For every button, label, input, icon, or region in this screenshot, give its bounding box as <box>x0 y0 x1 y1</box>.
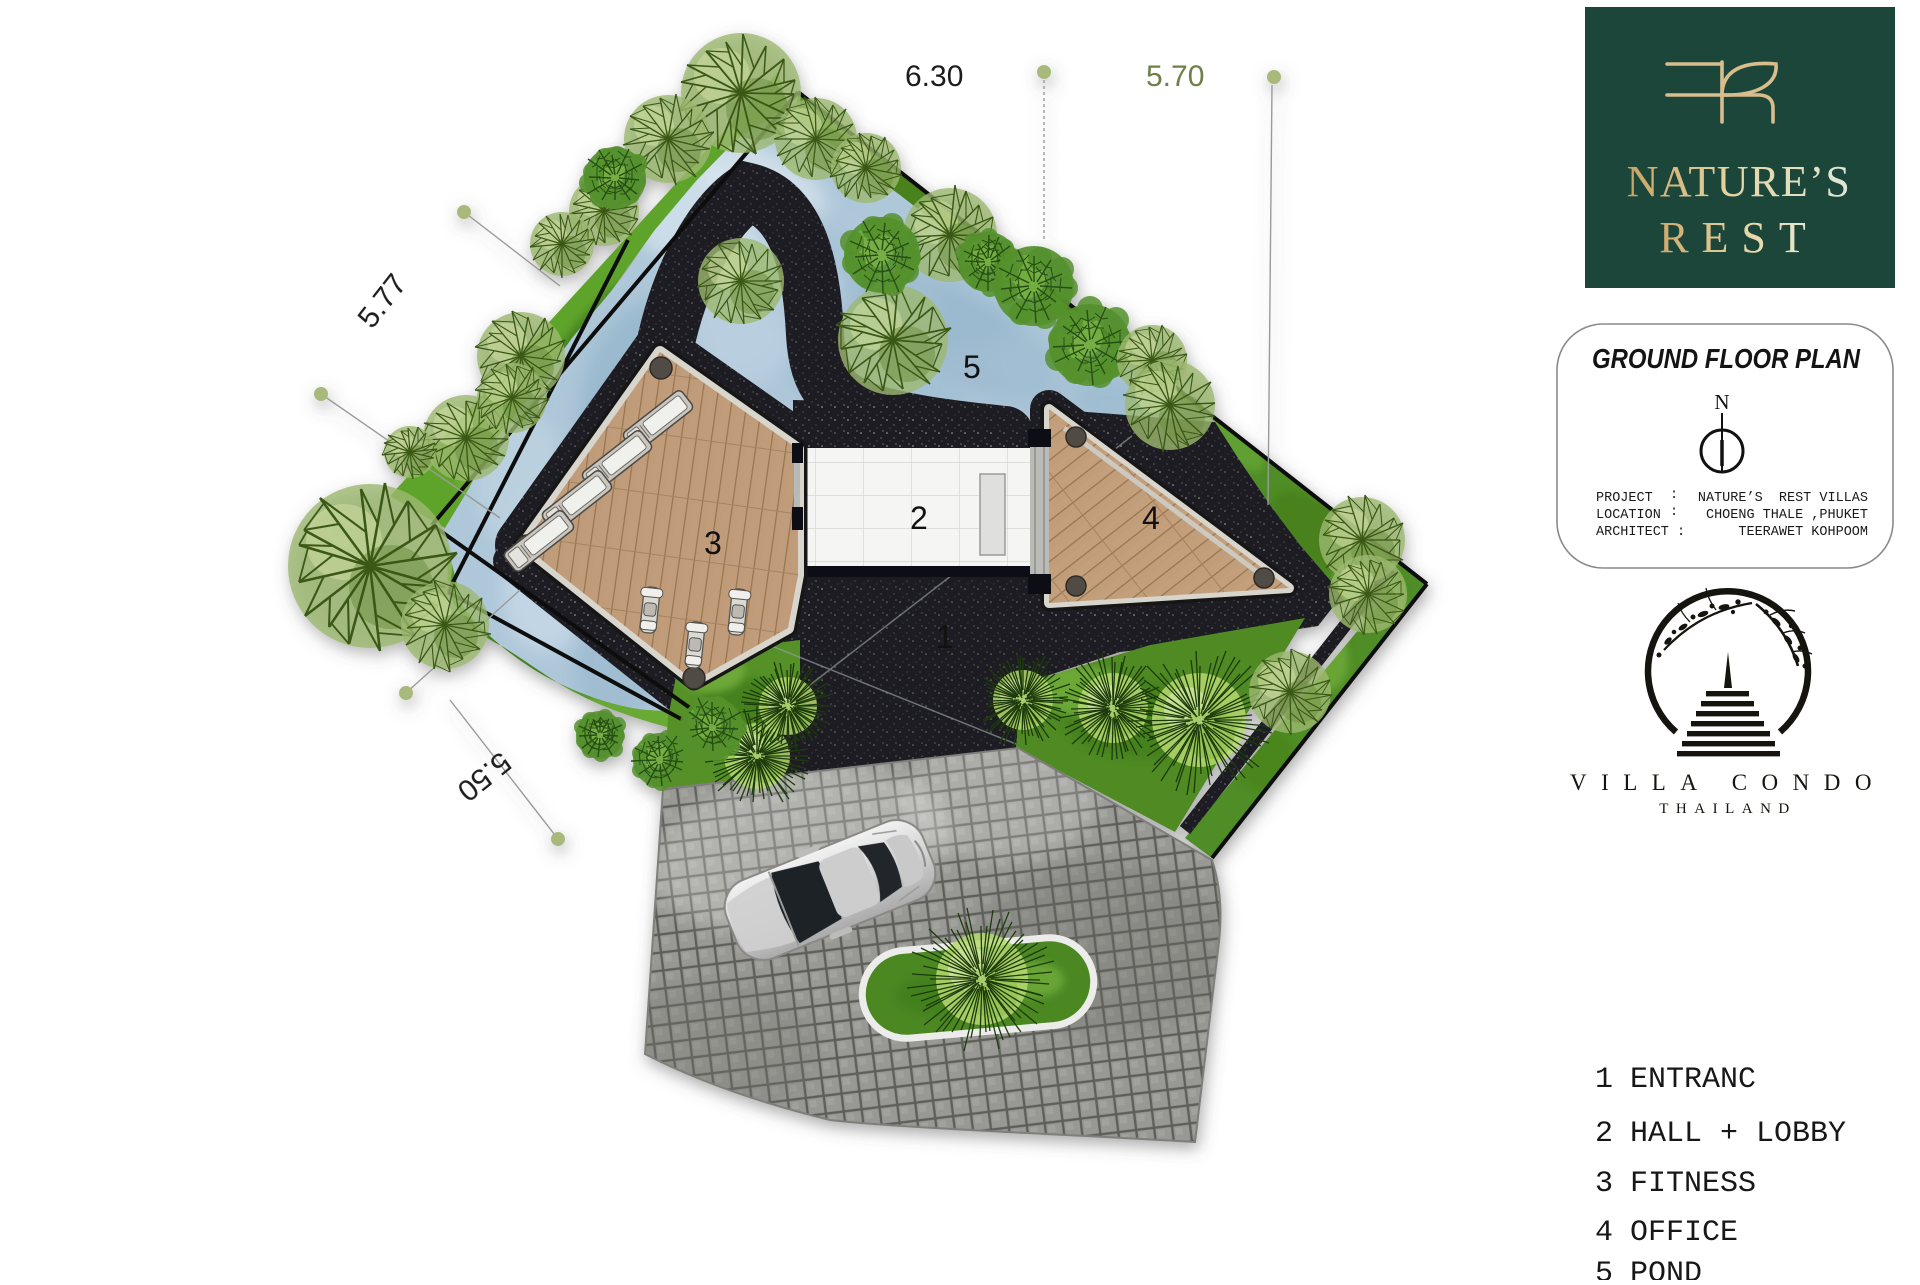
svg-text:VILLA CONDO: VILLA CONDO <box>1570 770 1886 795</box>
svg-text:ARCHITECT :: ARCHITECT : <box>1596 525 1685 540</box>
svg-text:FITNESS: FITNESS <box>1630 1167 1756 1201</box>
svg-text:GROUND FLOOR PLAN: GROUND FLOOR PLAN <box>1592 343 1861 374</box>
svg-text:5.77: 5.77 <box>352 268 414 334</box>
svg-text:HALL + LOBBY: HALL + LOBBY <box>1630 1117 1846 1151</box>
svg-text:2: 2 <box>1595 1117 1613 1151</box>
svg-text:4: 4 <box>1142 500 1160 536</box>
svg-text:4: 4 <box>1595 1216 1613 1250</box>
svg-text:6.30: 6.30 <box>905 60 963 93</box>
svg-text:1: 1 <box>936 619 954 655</box>
svg-text:REST: REST <box>1659 213 1819 262</box>
svg-text:LOCATION: LOCATION <box>1596 508 1661 523</box>
svg-text:CHOENG THALE ,PHUKET: CHOENG THALE ,PHUKET <box>1706 508 1868 523</box>
svg-text:POND: POND <box>1630 1257 1702 1280</box>
svg-text:3: 3 <box>1595 1167 1613 1201</box>
svg-text:NATURE’S: NATURE’S <box>1627 157 1852 206</box>
svg-text:N: N <box>1714 390 1729 414</box>
svg-text:3: 3 <box>704 525 722 561</box>
svg-text:ENTRANC: ENTRANC <box>1630 1063 1756 1097</box>
svg-text:THAILAND: THAILAND <box>1659 801 1796 817</box>
svg-text:OFFICE: OFFICE <box>1630 1216 1738 1250</box>
svg-text:TEERAWET KOHPOOM: TEERAWET KOHPOOM <box>1738 525 1868 540</box>
svg-text:2: 2 <box>910 500 928 536</box>
svg-text:PROJECT: PROJECT <box>1596 491 1653 506</box>
svg-text:NATURE’S REST VILLAS: NATURE’S REST VILLAS <box>1698 491 1868 506</box>
svg-text:5.70: 5.70 <box>1146 60 1204 93</box>
svg-text:5: 5 <box>963 349 981 385</box>
svg-text:5.50: 5.50 <box>451 745 517 807</box>
svg-text::: : <box>1670 505 1678 520</box>
svg-text:5: 5 <box>1595 1257 1613 1280</box>
svg-text::: : <box>1670 488 1678 503</box>
svg-text:1: 1 <box>1595 1063 1613 1097</box>
